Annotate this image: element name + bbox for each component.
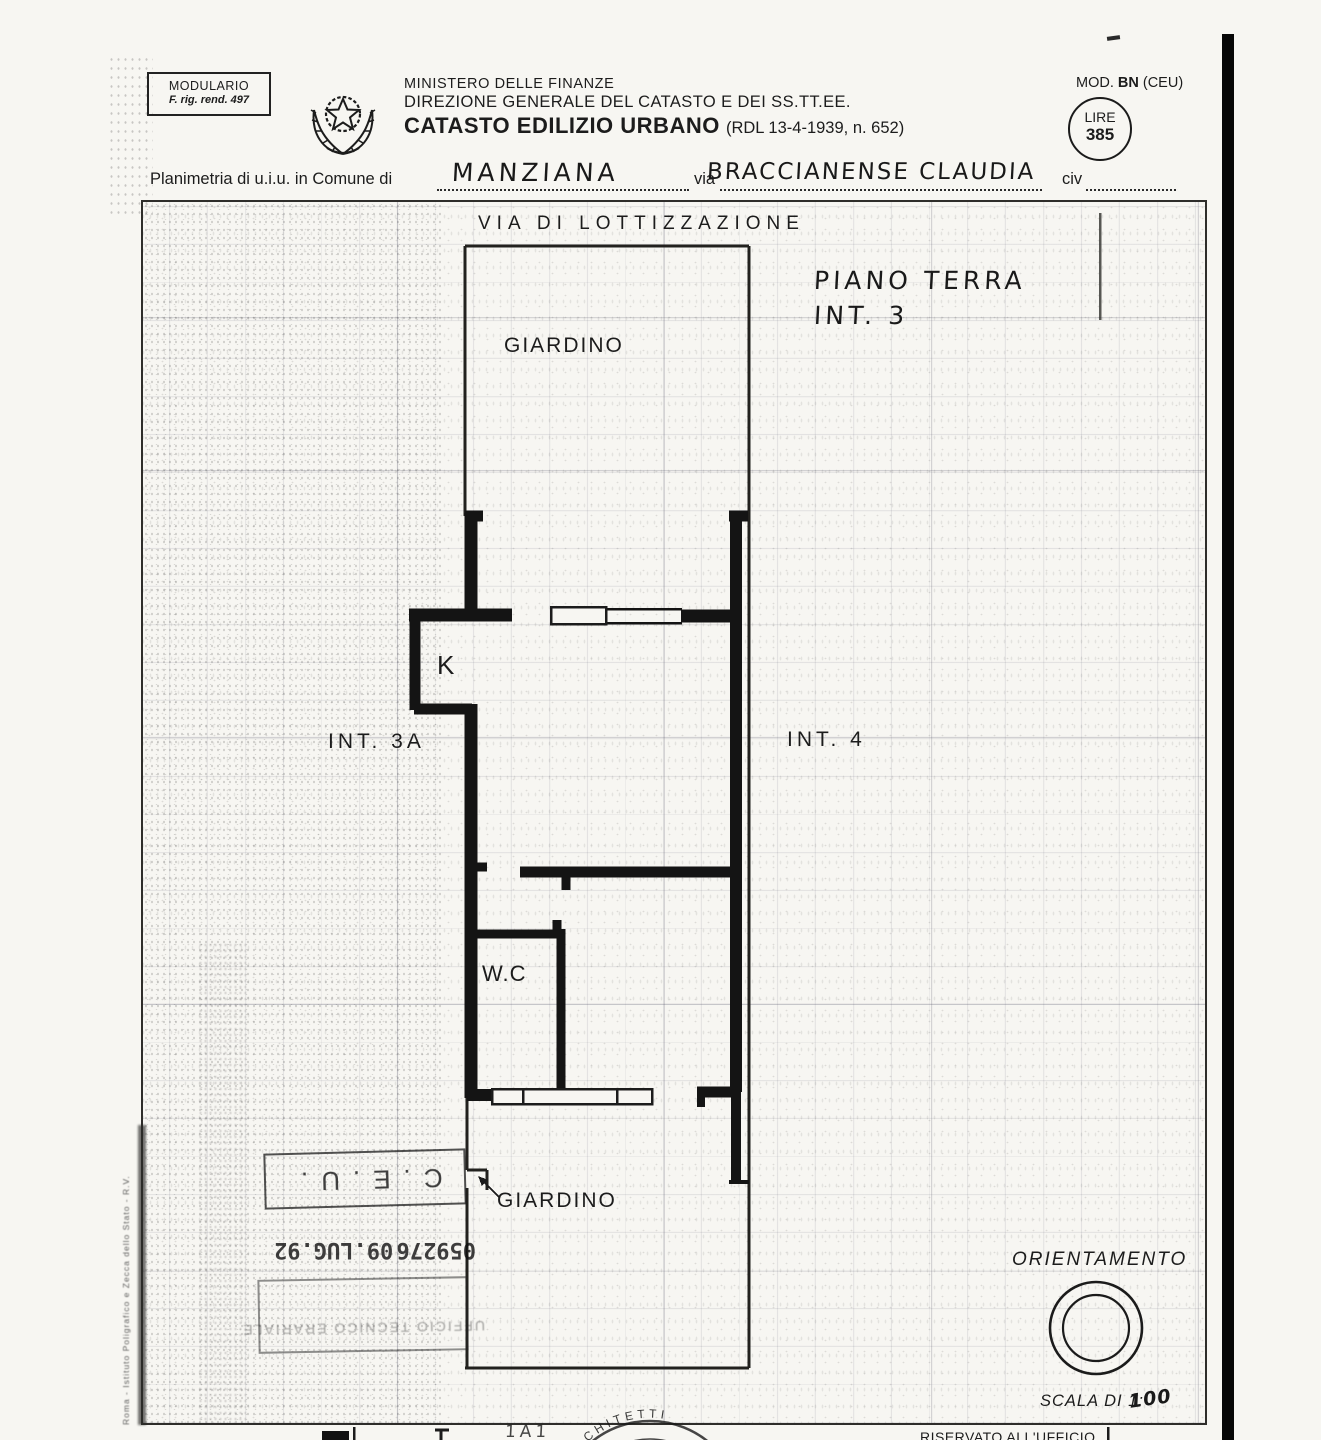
- riservato-label: RISERVATO ALL'UFFICIO: [920, 1429, 1096, 1440]
- protocol-stamp: 059276 09.LUG.92: [274, 1233, 476, 1267]
- compass-icon: [1050, 1282, 1142, 1374]
- svg-text:ARCHITETTI: ARCHITETTI: [563, 1407, 669, 1440]
- faded-office-stamp: UFFICIO TECNICO ERARIALE: [257, 1276, 468, 1354]
- unit-label-int3a: INT. 3A: [328, 730, 425, 754]
- floor-label-line2: INT. 3: [813, 301, 909, 330]
- wc-label: W.C: [482, 961, 527, 987]
- footer-black-mark: [322, 1431, 349, 1440]
- ceu-stamp-text: C.E.U.: [287, 1161, 442, 1196]
- architects-stamp-text: ARCHITETTI: [563, 1407, 669, 1440]
- protocol-number: 059276: [397, 1238, 476, 1263]
- floor-label-line1: PIANO TERRA: [813, 266, 1026, 295]
- kitchen-label: K: [437, 650, 454, 681]
- architects-stamp: ARCHITETTI: [558, 1407, 742, 1440]
- garden-label-top: GIARDINO: [504, 334, 624, 358]
- footer-handwritten-mark: 1A1: [504, 1422, 550, 1440]
- faded-office-stamp-text: UFFICIO TECNICO ERARIALE: [241, 1318, 485, 1338]
- orientation-label: ORIENTAMENTO: [1012, 1249, 1187, 1271]
- scanned-cadastral-document: MODULARIO F. rig. rend. 497 MINISTERO DE…: [0, 0, 1321, 1440]
- unit-label-int4: INT. 4: [787, 728, 866, 752]
- protocol-date: 09.LUG.92: [274, 1238, 393, 1263]
- street-label: VIA DI LOTTIZZAZIONE: [478, 213, 805, 235]
- garden-label-bottom: GIARDINO: [497, 1189, 617, 1213]
- ceu-stamp: C.E.U.: [263, 1148, 466, 1209]
- printer-imprint: Roma - Istituto Poligrafico e Zecca dell…: [121, 1150, 135, 1425]
